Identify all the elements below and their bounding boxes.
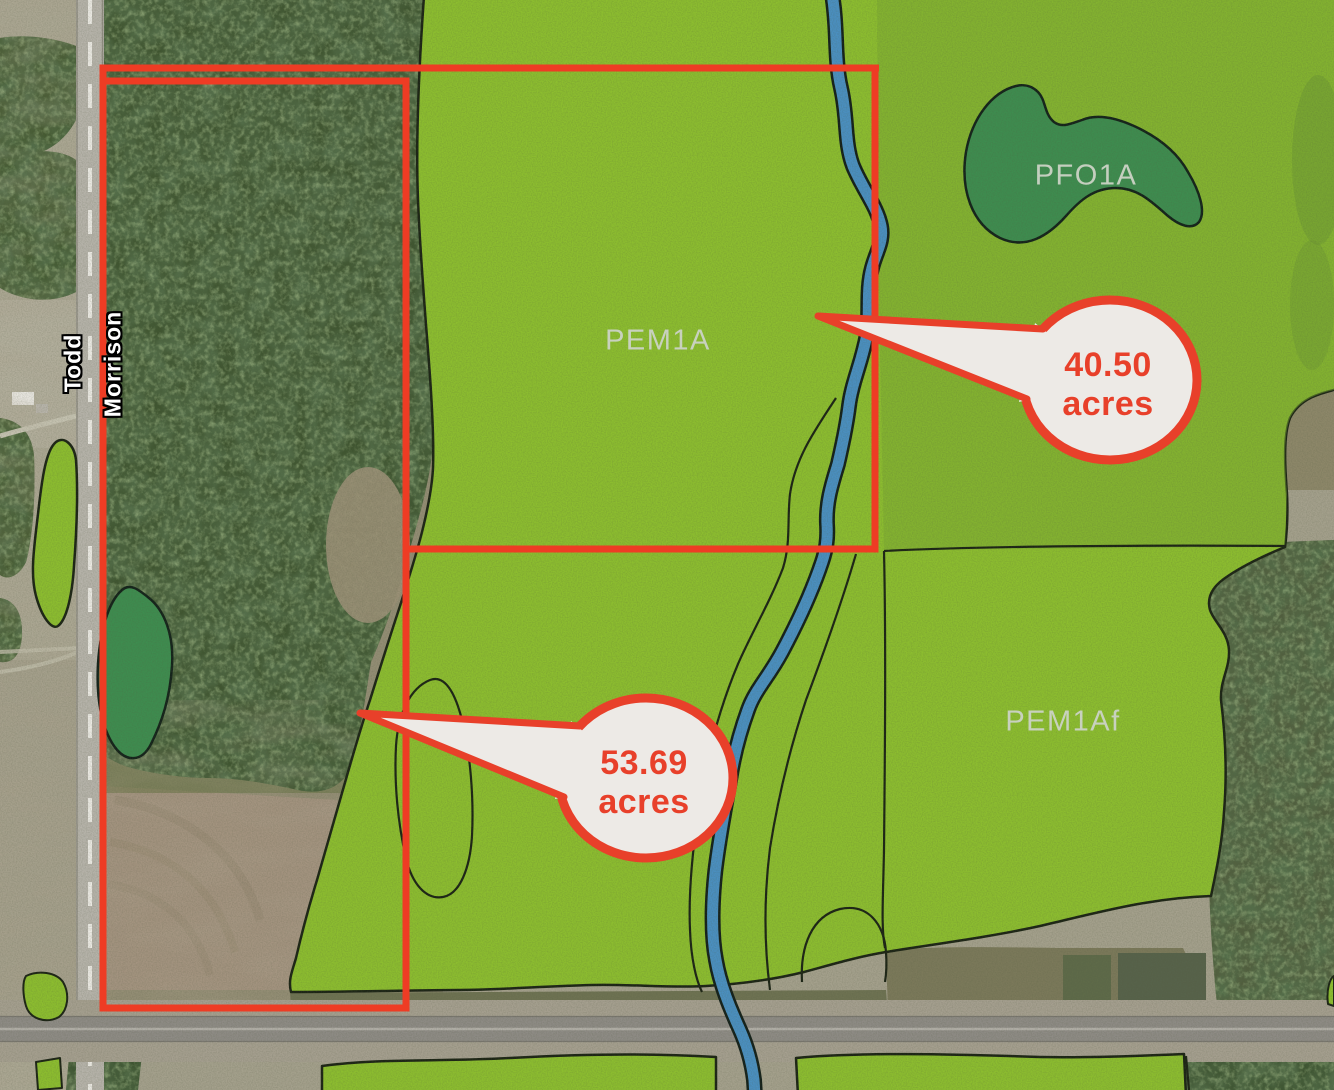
wetland-label-pem1a: PEM1A <box>605 325 711 358</box>
callout-value: 53.69 <box>554 744 734 783</box>
map-viewport[interactable]: PEM1A PFO1A PEM1Af Todd Morrison 40.50 a… <box>0 0 1334 1090</box>
callout-text-40-50: 40.50 acres <box>1018 346 1198 424</box>
road-label-morrison: Morrison <box>100 311 127 417</box>
wetland-label-pem1af: PEM1Af <box>1005 706 1120 739</box>
road-label-todd: Todd <box>60 334 87 393</box>
callout-text-53-69: 53.69 acres <box>554 744 734 822</box>
callout-unit: acres <box>1018 385 1198 424</box>
callout-value: 40.50 <box>1018 346 1198 385</box>
wetland-label-pfo1a: PFO1A <box>1035 160 1138 193</box>
callout-unit: acres <box>554 783 734 822</box>
